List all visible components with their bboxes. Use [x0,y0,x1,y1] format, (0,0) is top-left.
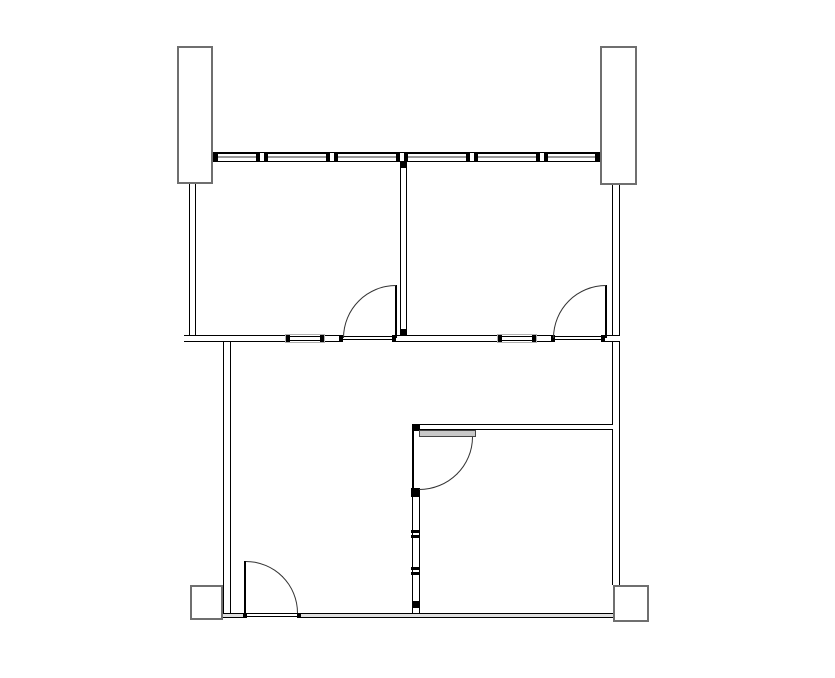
threshold-door-lower-left [247,613,297,617]
partition-bottom-cap [412,601,420,608]
door-swing-arc:door-upper-right-arc [553,285,606,338]
window-mullion-post-b [474,153,478,161]
partition-tick-2a [411,567,420,570]
window-mullion-post-a [536,153,540,161]
interior-window-jamb-right [320,335,324,342]
window-mullion-post-a [466,153,470,161]
divider-bottom-cap [400,329,407,335]
window-mullion-2 [326,153,338,161]
window-mullion-post-a [326,153,330,161]
door-swing-arc:door-lower-right-arc [419,437,473,490]
interior-window-sill-line-top [290,336,320,337]
window-mullion-3 [396,153,408,161]
window-mullion-post-b [264,153,268,161]
wall-middle-seg-1 [184,335,285,342]
column-bottom-left [190,585,223,620]
column-top-left [177,46,213,184]
wall-bottom-seg-2 [297,613,613,618]
window-band-end-cap-1 [213,153,218,161]
interior-window-sill-line-top [502,336,532,337]
partition-tick-1a [411,530,420,533]
interior-window-right [497,334,537,343]
partition-tick-2b [411,572,420,575]
window-mullion-post-b [544,153,548,161]
window-mullion-post-b [404,153,408,161]
window-mullion-post-b [334,153,338,161]
column-bottom-right [613,585,649,622]
window-mullion-5 [536,153,548,161]
partition-tick-1b [411,535,420,538]
wall-upper-divider [400,162,407,335]
interior-window-sill-line-bottom [502,340,532,341]
interior-window-left [285,334,325,343]
wall-right [612,185,620,585]
window-mullion-4 [466,153,478,161]
window-mullion-post-a [256,153,260,161]
floor-plan [0,0,835,678]
wall-middle-seg-5 [605,335,620,342]
wall-left-upper [189,184,196,335]
jamb-lower-left-door-a [243,613,247,618]
window-mullion-1 [256,153,268,161]
wall-left-lower [223,342,231,618]
door-swing-arc:door-lower-left-arc [246,561,298,613]
partition-lower [412,497,420,613]
door-swing-arc:door-upper-left-arc [343,285,396,338]
wall-middle-seg-3 [396,335,497,342]
door-lower-right-leaf [419,430,476,437]
window-band-end-cap-2 [595,153,600,161]
window-band-north [213,152,600,162]
divider-top-cap [400,162,407,168]
column-top-right [600,46,637,185]
window-mullion-post-a [396,153,400,161]
interior-window-jamb-right [532,335,536,342]
jamb-lower-left-door-b [297,613,301,618]
partition-door-face-line [412,431,414,488]
interior-window-sill-line-bottom [290,340,320,341]
